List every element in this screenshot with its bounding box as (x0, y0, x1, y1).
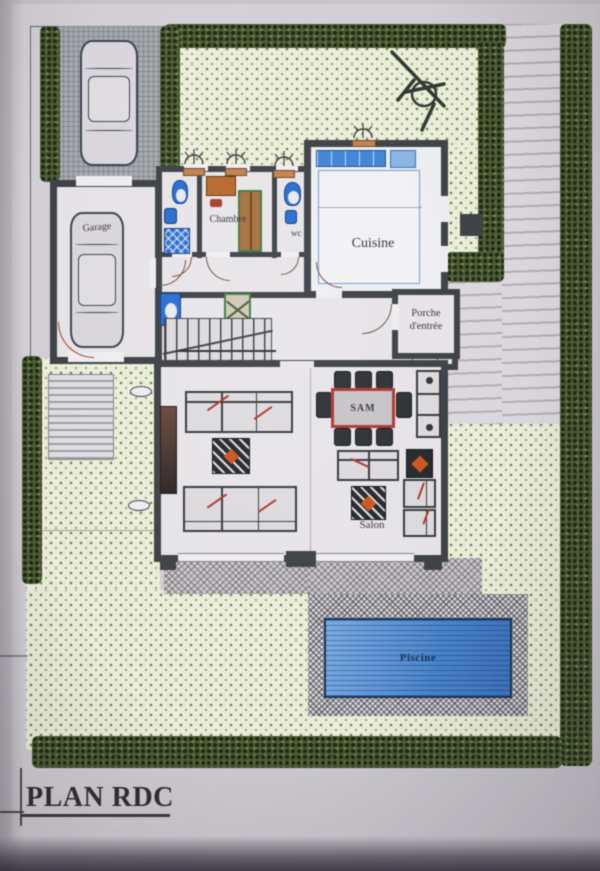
margin-mark (0, 655, 28, 657)
title-tick-vertical (20, 768, 22, 826)
porch-label-line1: Porche (411, 308, 440, 319)
porch-label-line2: d'entrée (410, 321, 443, 332)
sofa-cushion-line (256, 393, 258, 431)
dining-room-label: SAM (350, 403, 375, 414)
car-roof (78, 254, 116, 306)
console-icon (416, 370, 441, 438)
sofa-back-line (185, 521, 295, 523)
kitchen-label: Cuisine (318, 236, 428, 252)
shower-icon (164, 228, 190, 254)
car-windshield (85, 68, 133, 69)
toilet-icon (284, 182, 301, 206)
basin-bowl (165, 303, 177, 319)
plan-title: PLAN RDC (26, 782, 174, 814)
pillar (460, 214, 482, 236)
pool-label: Piscine (400, 652, 437, 664)
console-line (418, 414, 439, 416)
sofa-back-line (187, 401, 291, 403)
hedge-left (22, 356, 42, 584)
dining-chair-icon (376, 371, 393, 389)
pergola-deck (48, 374, 114, 460)
living-opening (280, 361, 314, 369)
dining-table-icon: SAM (331, 388, 395, 428)
window-opening (316, 553, 414, 562)
table-centerpiece (223, 448, 239, 464)
light-fixture-icon (130, 386, 152, 397)
title-underline (20, 814, 170, 817)
dining-chair-icon (334, 371, 351, 389)
window-sill (352, 140, 376, 147)
armchair-line (426, 481, 428, 506)
window-sill (273, 170, 295, 178)
side-table-icon (406, 449, 433, 478)
window-sill (225, 168, 247, 176)
car-icon (80, 40, 138, 166)
kitchen-counter (316, 150, 386, 167)
hedge-top (164, 24, 506, 48)
floor-plan-photo: Piscine Garage Chambre wc (0, 0, 600, 871)
hedge-drive-left (40, 26, 60, 182)
toilet-bowl (288, 191, 299, 204)
kitchen-sink (390, 150, 416, 168)
photo-bottom-edge (0, 836, 600, 871)
walkway-right (500, 24, 562, 424)
dining-chair-icon (396, 392, 412, 418)
dining-chair-icon (334, 428, 351, 446)
console-line (418, 393, 439, 395)
sofa-icon (185, 391, 293, 433)
table-centerpiece (411, 455, 428, 472)
car-rear-window (75, 312, 119, 313)
window-opening (178, 553, 284, 562)
palm-tree-icon (384, 46, 468, 138)
wall-pier (160, 560, 176, 570)
dining-chair-icon (376, 428, 393, 446)
console-knob (426, 424, 433, 431)
dimension-line (318, 207, 422, 208)
wc-label: wc (291, 228, 302, 238)
plan-sheet-wrapper: Piscine Garage Chambre wc (0, 0, 600, 871)
room-divider-line (310, 368, 311, 558)
window-opening (440, 246, 448, 272)
garage-door-opening (76, 176, 132, 186)
desk-icon (206, 176, 236, 196)
washbasin-icon (285, 210, 297, 224)
car-windshield (75, 244, 119, 245)
bedroom-label: Chambre (198, 214, 258, 225)
armchair-icon (403, 509, 436, 537)
coffee-table-icon (351, 486, 386, 520)
sofa-icon (183, 486, 297, 532)
toilet-bowl (176, 189, 186, 202)
console-knob (426, 377, 433, 384)
salon-label: Salon (342, 519, 402, 531)
light-fixture-icon (128, 500, 150, 511)
title-tick-horizontal (0, 811, 24, 813)
hedge-right (560, 24, 592, 766)
hedge-mid-vertical (478, 42, 504, 282)
wall-pier (424, 560, 442, 570)
partition-bedroom-wc (272, 172, 277, 258)
kitchen-door-opening (316, 289, 342, 298)
hedge-bottom (32, 736, 562, 768)
hedge-drive-right (160, 26, 180, 176)
table-centerpiece (361, 495, 377, 511)
washbasin-icon (164, 208, 177, 224)
garden-side (446, 148, 480, 256)
dining-chair-icon (355, 428, 372, 446)
pool: Piscine (324, 618, 512, 698)
tv-unit-icon (160, 406, 177, 494)
hedge-mid-stub (446, 252, 504, 282)
dimension-line (26, 530, 160, 531)
toilet-icon (172, 180, 188, 204)
stool-icon (210, 199, 222, 207)
car-roof (88, 76, 129, 122)
car-rear-window (85, 130, 133, 131)
window-opening (440, 196, 448, 222)
porch-label: Porche d'entrée (398, 307, 454, 333)
wall-pier (286, 551, 316, 567)
dining-chair-icon (316, 392, 332, 418)
coffee-table-icon (212, 438, 250, 474)
dining-chair-icon (355, 371, 372, 389)
window-sill (183, 168, 205, 176)
